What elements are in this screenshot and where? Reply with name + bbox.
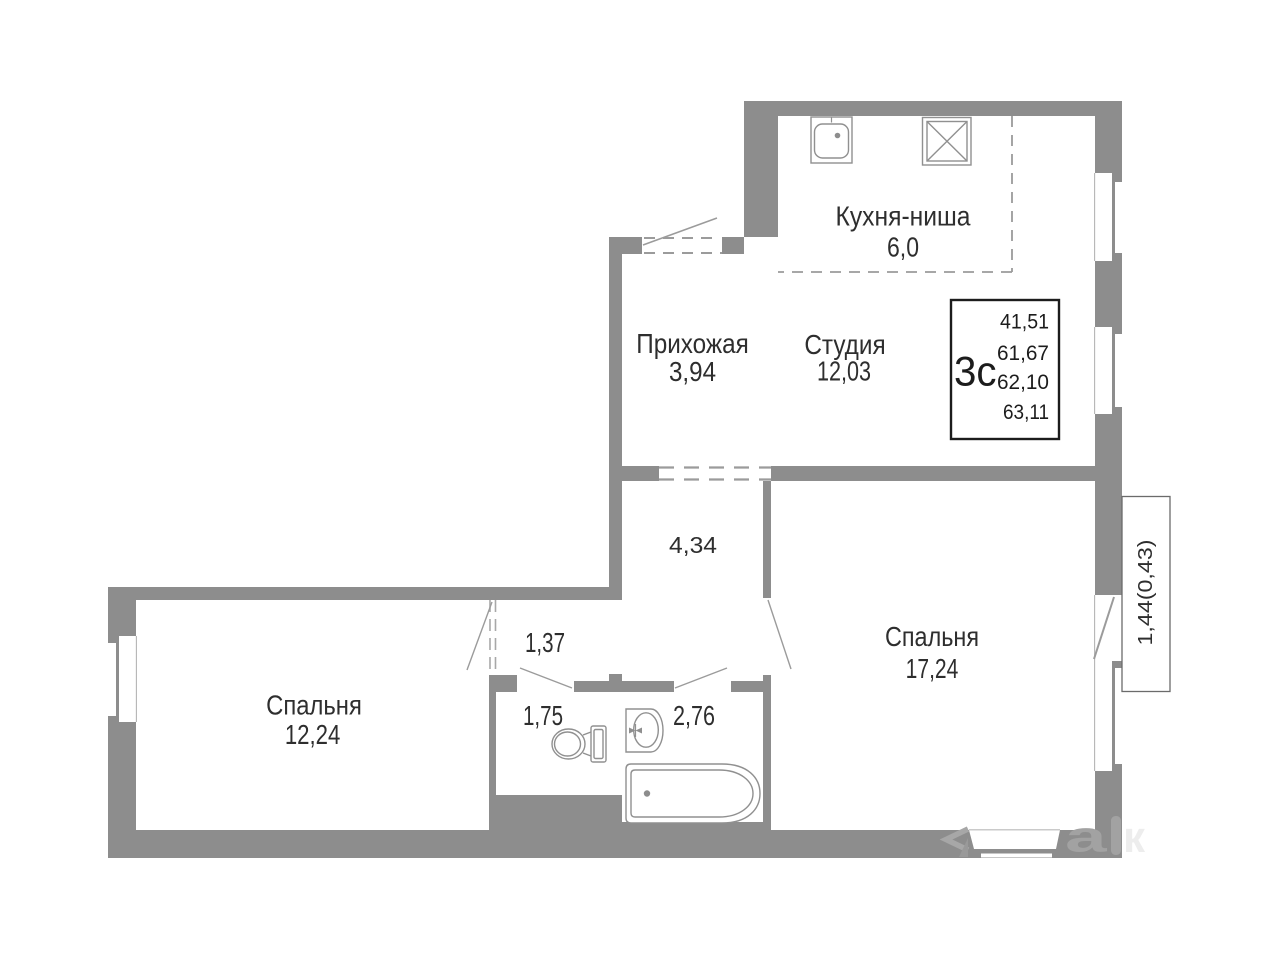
- svg-text:1,37: 1,37: [525, 627, 565, 658]
- svg-text:6,0: 6,0: [887, 232, 919, 263]
- svg-text:3,94: 3,94: [669, 356, 716, 387]
- svg-text:Кухня-ниша: Кухня-ниша: [836, 200, 971, 231]
- svg-text:4,34: 4,34: [669, 532, 717, 558]
- svg-text:2,76: 2,76: [673, 700, 715, 731]
- svg-text:Прихожая: Прихожая: [636, 328, 749, 359]
- svg-text:Спальня: Спальня: [266, 690, 362, 721]
- svg-text:17,24: 17,24: [906, 653, 959, 684]
- svg-text:61,67: 61,67: [997, 342, 1049, 365]
- svg-text:Спальня: Спальня: [885, 621, 979, 652]
- svg-text:а: а: [1065, 812, 1108, 861]
- svg-text:1,75: 1,75: [523, 700, 563, 731]
- svg-text:к: к: [1123, 813, 1146, 862]
- svg-text:3с: 3с: [954, 348, 997, 395]
- svg-text:1,44(0,43): 1,44(0,43): [1135, 540, 1157, 646]
- svg-text:12,03: 12,03: [817, 356, 871, 387]
- svg-text:41,51: 41,51: [1000, 310, 1049, 333]
- svg-text:63,11: 63,11: [1003, 401, 1049, 424]
- svg-text:62,10: 62,10: [997, 371, 1049, 394]
- svg-text:12,24: 12,24: [285, 719, 341, 750]
